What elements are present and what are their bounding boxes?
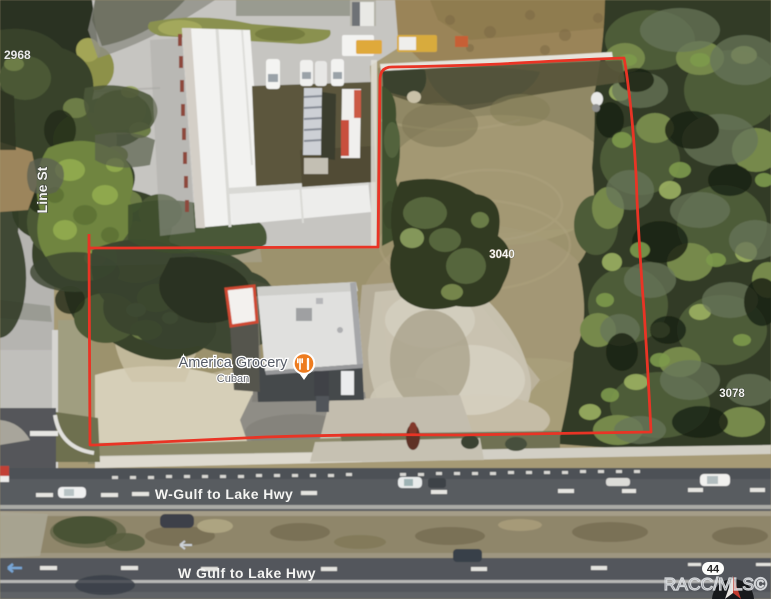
svg-text:W-Gulf to Lake Hwy: W-Gulf to Lake Hwy (155, 486, 293, 502)
svg-text:Line St: Line St (34, 166, 50, 213)
svg-text:3078: 3078 (719, 388, 745, 400)
svg-text:RACC/MLS©: RACC/MLS© (664, 574, 767, 594)
svg-text:2968: 2968 (4, 48, 31, 62)
svg-text:Cuban: Cuban (217, 373, 249, 385)
svg-text:3040: 3040 (489, 249, 515, 261)
svg-text:W Gulf to Lake Hwy: W Gulf to Lake Hwy (178, 565, 316, 581)
svg-text:America Grocery: America Grocery (179, 355, 289, 371)
